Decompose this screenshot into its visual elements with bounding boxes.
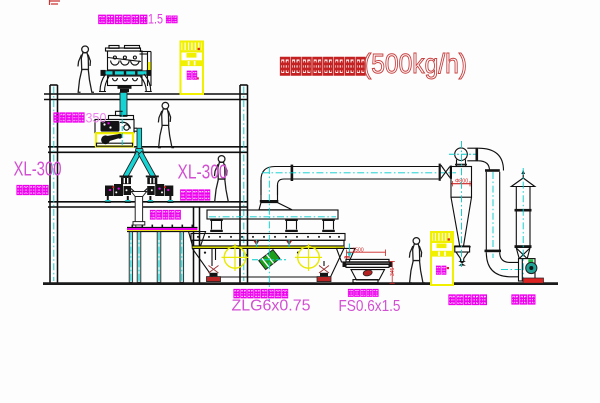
- svg-text:345: 345: [390, 267, 396, 276]
- svg-text:FS0.6x1.5: FS0.6x1.5: [339, 298, 401, 315]
- svg-text:350: 350: [86, 111, 107, 126]
- svg-text:ZLG6x0.75: ZLG6x0.75: [232, 298, 311, 315]
- svg-text:XL-300: XL-300: [14, 159, 62, 181]
- svg-text:1.5: 1.5: [148, 11, 163, 27]
- svg-text:1500: 1500: [353, 247, 364, 253]
- svg-text:(500kg/h): (500kg/h): [363, 48, 467, 79]
- svg-text:XL-300: XL-300: [178, 161, 228, 184]
